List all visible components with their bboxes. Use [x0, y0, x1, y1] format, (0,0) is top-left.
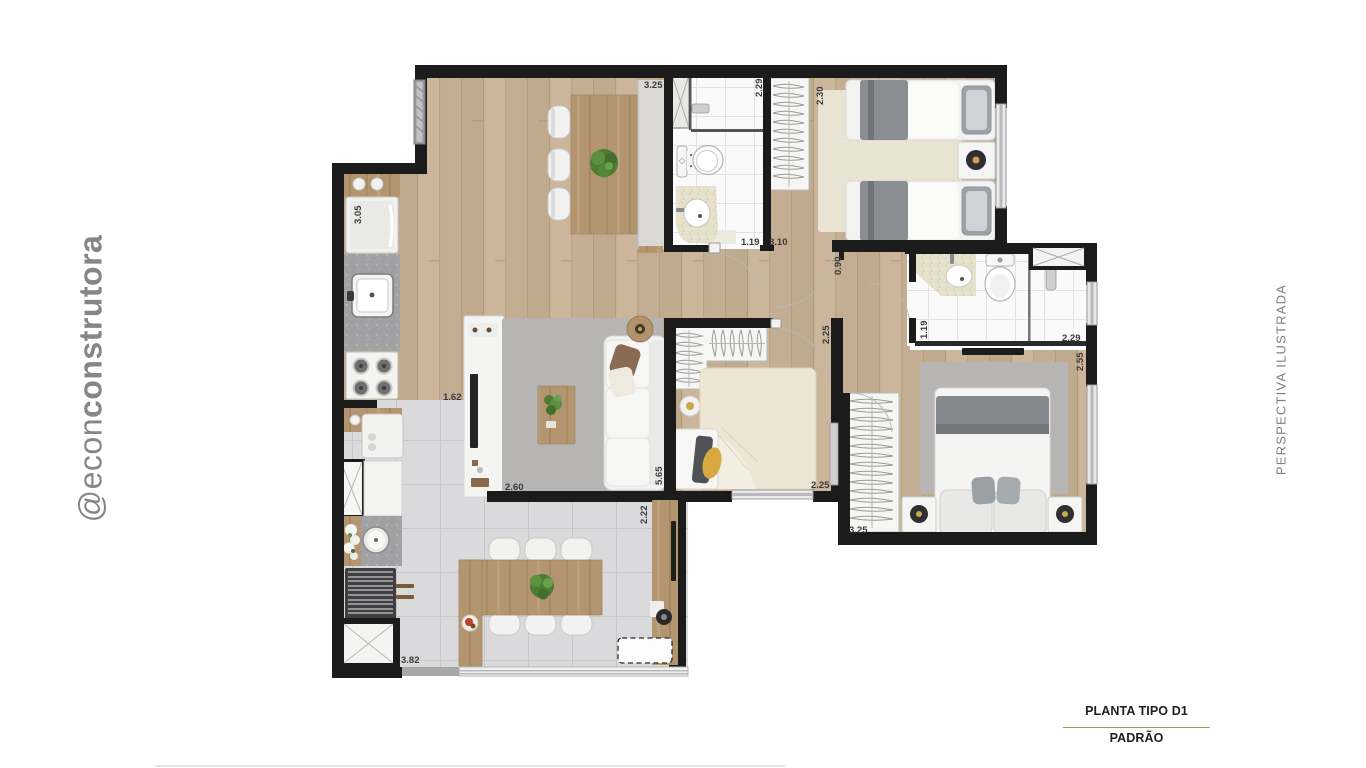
svg-text:3.25: 3.25: [644, 80, 663, 91]
svg-text:2.29: 2.29: [1062, 333, 1081, 344]
svg-text:3.25: 3.25: [849, 525, 868, 536]
svg-text:2.25: 2.25: [821, 325, 832, 344]
svg-text:2.22: 2.22: [639, 506, 650, 525]
svg-text:1.19: 1.19: [741, 237, 760, 248]
svg-text:2.25: 2.25: [811, 480, 830, 491]
svg-text:2.29: 2.29: [754, 79, 765, 98]
svg-text:0.90: 0.90: [833, 257, 844, 276]
svg-text:2.30: 2.30: [815, 87, 826, 106]
svg-text:2.55: 2.55: [1075, 352, 1086, 371]
svg-text:1.62: 1.62: [443, 392, 462, 403]
svg-text:3.10: 3.10: [769, 237, 788, 248]
svg-text:5.65: 5.65: [654, 466, 665, 485]
svg-text:2.60: 2.60: [505, 482, 524, 493]
svg-text:3.82: 3.82: [401, 655, 420, 666]
svg-text:3.05: 3.05: [353, 205, 364, 224]
svg-text:1.19: 1.19: [919, 321, 930, 340]
